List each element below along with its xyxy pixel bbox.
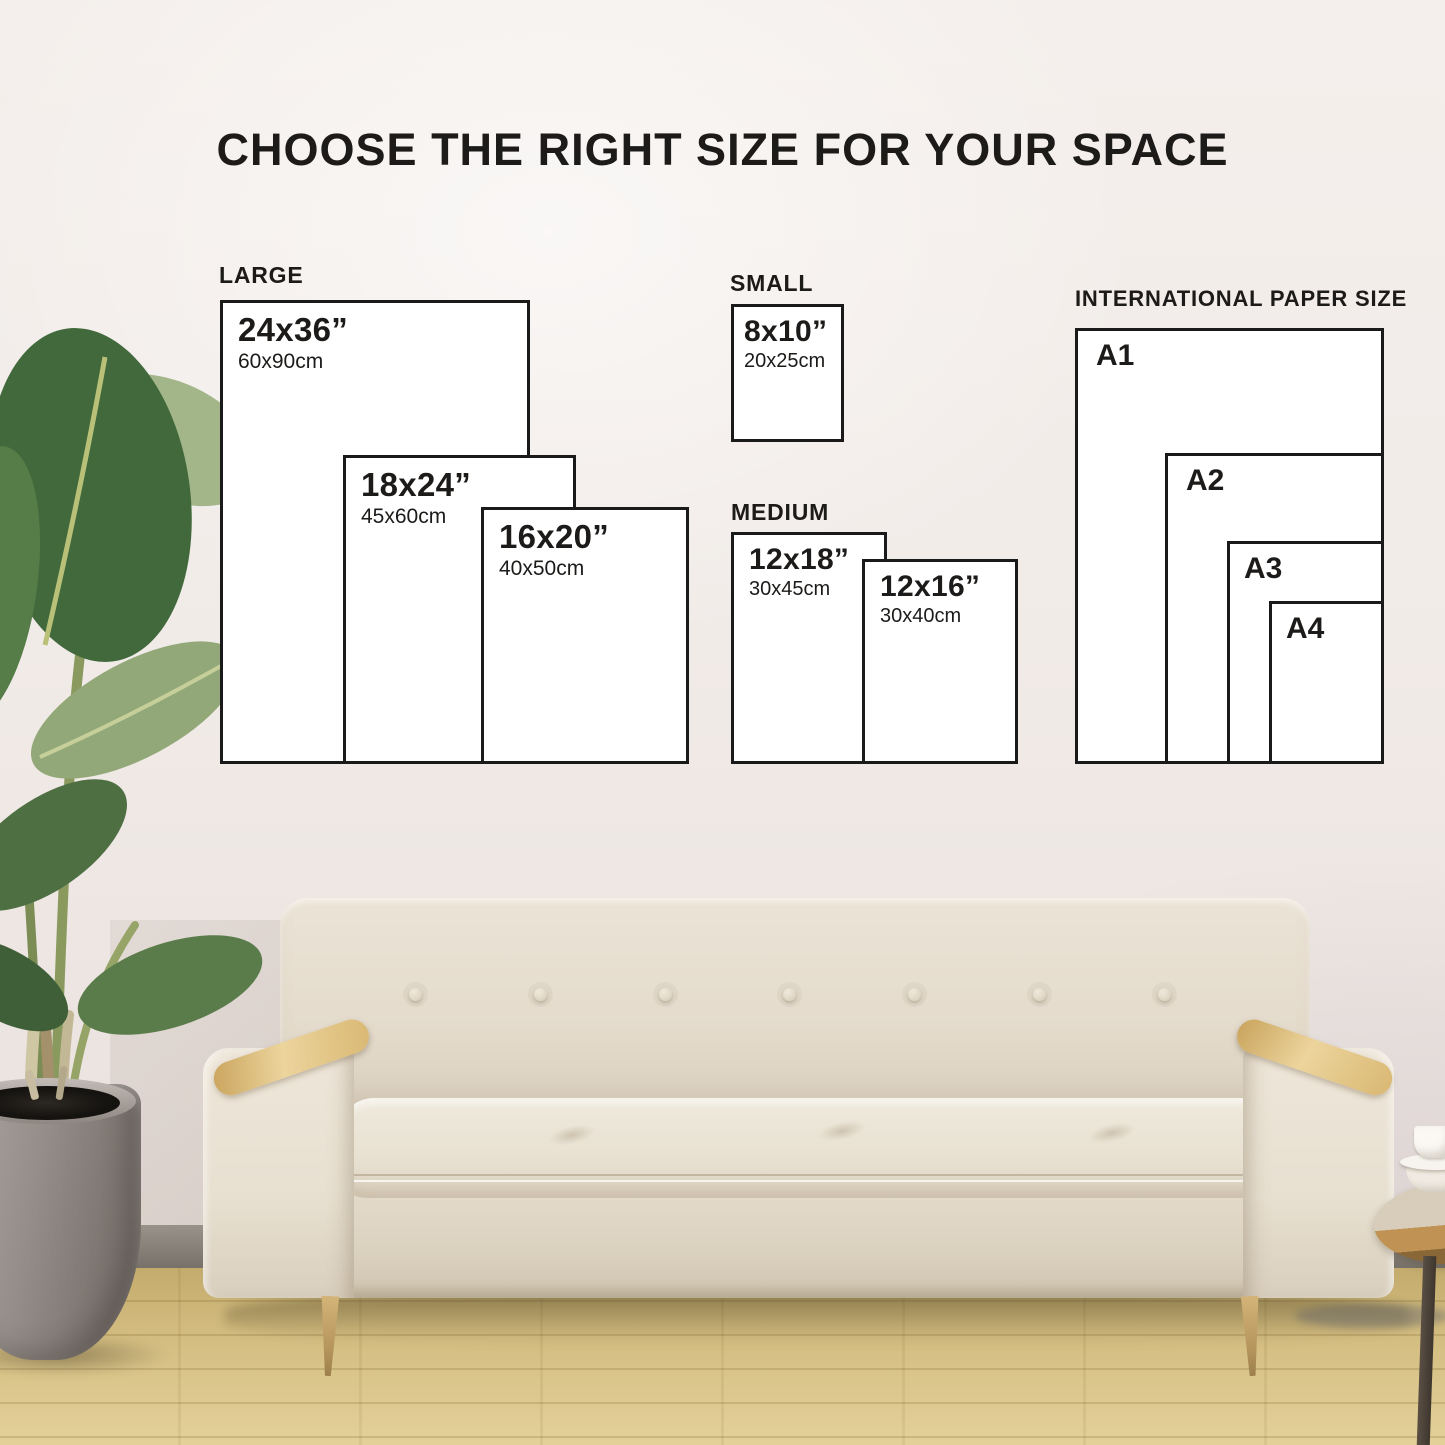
size-inches: 18x24” (361, 467, 573, 503)
paper-size-name: A3 (1244, 553, 1381, 585)
section-label-large: LARGE (219, 262, 304, 289)
size-box-16x20: 16x20” 40x50cm (481, 507, 689, 764)
size-inches: 16x20” (499, 519, 686, 555)
size-inches: 8x10” (744, 316, 841, 348)
size-cm: 40x50cm (499, 558, 686, 581)
size-box-12x16: 12x16” 30x40cm (862, 559, 1018, 764)
size-guide-diagram: CHOOSE THE RIGHT SIZE FOR YOUR SPACE LAR… (0, 0, 1445, 1445)
size-guide-mockup: CHOOSE THE RIGHT SIZE FOR YOUR SPACE LAR… (0, 0, 1445, 1445)
size-cm: 30x40cm (880, 606, 1015, 628)
page-title: CHOOSE THE RIGHT SIZE FOR YOUR SPACE (0, 124, 1445, 176)
size-inches: 24x36” (238, 312, 527, 348)
paper-size-name: A2 (1186, 465, 1381, 497)
paper-size-name: A4 (1286, 613, 1381, 645)
size-cm: 20x25cm (744, 351, 841, 373)
section-label-international: INTERNATIONAL PAPER SIZE (1075, 286, 1407, 312)
section-label-medium: MEDIUM (731, 499, 829, 526)
size-inches: 12x16” (880, 571, 1015, 603)
size-box-8x10: 8x10” 20x25cm (731, 304, 844, 442)
section-label-small: SMALL (730, 270, 813, 297)
paper-size-name: A1 (1096, 340, 1381, 372)
size-box-a4: A4 (1269, 601, 1384, 764)
size-cm: 60x90cm (238, 351, 527, 374)
